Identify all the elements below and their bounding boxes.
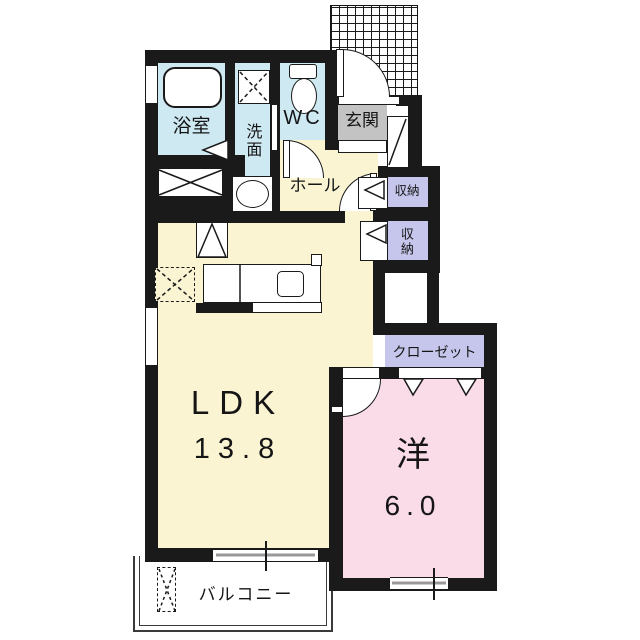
label-western-room: 洋	[383, 436, 443, 476]
wall-storage-mid	[373, 207, 440, 221]
balcony-washer-space	[157, 567, 176, 612]
toilet-tank	[289, 64, 317, 79]
shoe-cabinet	[387, 116, 409, 168]
wall-kitchen-stub	[196, 303, 252, 313]
label-hall: ホール	[278, 175, 352, 197]
label-entrance: 玄関	[336, 110, 388, 132]
wall-bath-bottom	[145, 155, 235, 168]
label-closet: クローゼット	[386, 343, 483, 361]
wc-door-leaf	[283, 140, 290, 178]
bedroom-window	[390, 577, 448, 590]
bathtub	[163, 67, 222, 108]
washing-machine-pan	[238, 70, 270, 104]
label-western-area: 6.0	[370, 490, 456, 522]
wall-left	[145, 50, 158, 562]
wall-entrance-right	[408, 95, 422, 177]
label-wc: WC	[278, 106, 328, 130]
ldk-left-window	[145, 308, 158, 365]
wall-ldk-top	[235, 211, 345, 223]
bedroom-door-leaf	[331, 406, 343, 413]
wall-below-hatch	[145, 197, 245, 223]
hatch-band	[158, 168, 223, 197]
entrance-door-leaf	[336, 49, 344, 97]
label-storage-2: 収納	[392, 222, 420, 262]
washroom-sliding-door	[271, 104, 278, 151]
kitchen-counter-lower	[252, 302, 322, 313]
washroom-sink-bowl	[236, 180, 269, 208]
wall-right-outer	[484, 323, 497, 591]
bedroom-door-gap	[343, 368, 379, 378]
label-storage-1: 収納	[386, 184, 428, 200]
label-bathroom: 浴室	[158, 116, 225, 138]
label-balcony: バルコニー	[180, 584, 312, 606]
wall-bath-washroom-divider	[225, 63, 235, 168]
entrance-step	[338, 140, 387, 153]
entrance-sill	[338, 96, 400, 105]
wall-closet-top	[373, 323, 497, 335]
kitchen-stove	[277, 271, 304, 297]
label-washroom: 洗面	[240, 110, 262, 172]
ldk-balcony-window	[213, 549, 318, 562]
bathroom-window	[145, 66, 158, 103]
storage-2-door-panel	[360, 221, 388, 261]
closet-folding-door	[398, 367, 482, 379]
label-ldk-area: 13.8	[150, 432, 326, 466]
kitchen-counter-tab	[311, 254, 322, 266]
label-ldk: LDK	[150, 384, 326, 422]
washer-space-dashed	[155, 267, 195, 302]
refrigerator-space	[196, 222, 228, 258]
storage-1-door-panel	[358, 177, 388, 209]
floor-plan: 浴室 洗面 WC 玄関 ホール 収納 収納 クローゼット LDK 13.8 洋 …	[0, 0, 640, 640]
wall-top	[145, 50, 338, 63]
